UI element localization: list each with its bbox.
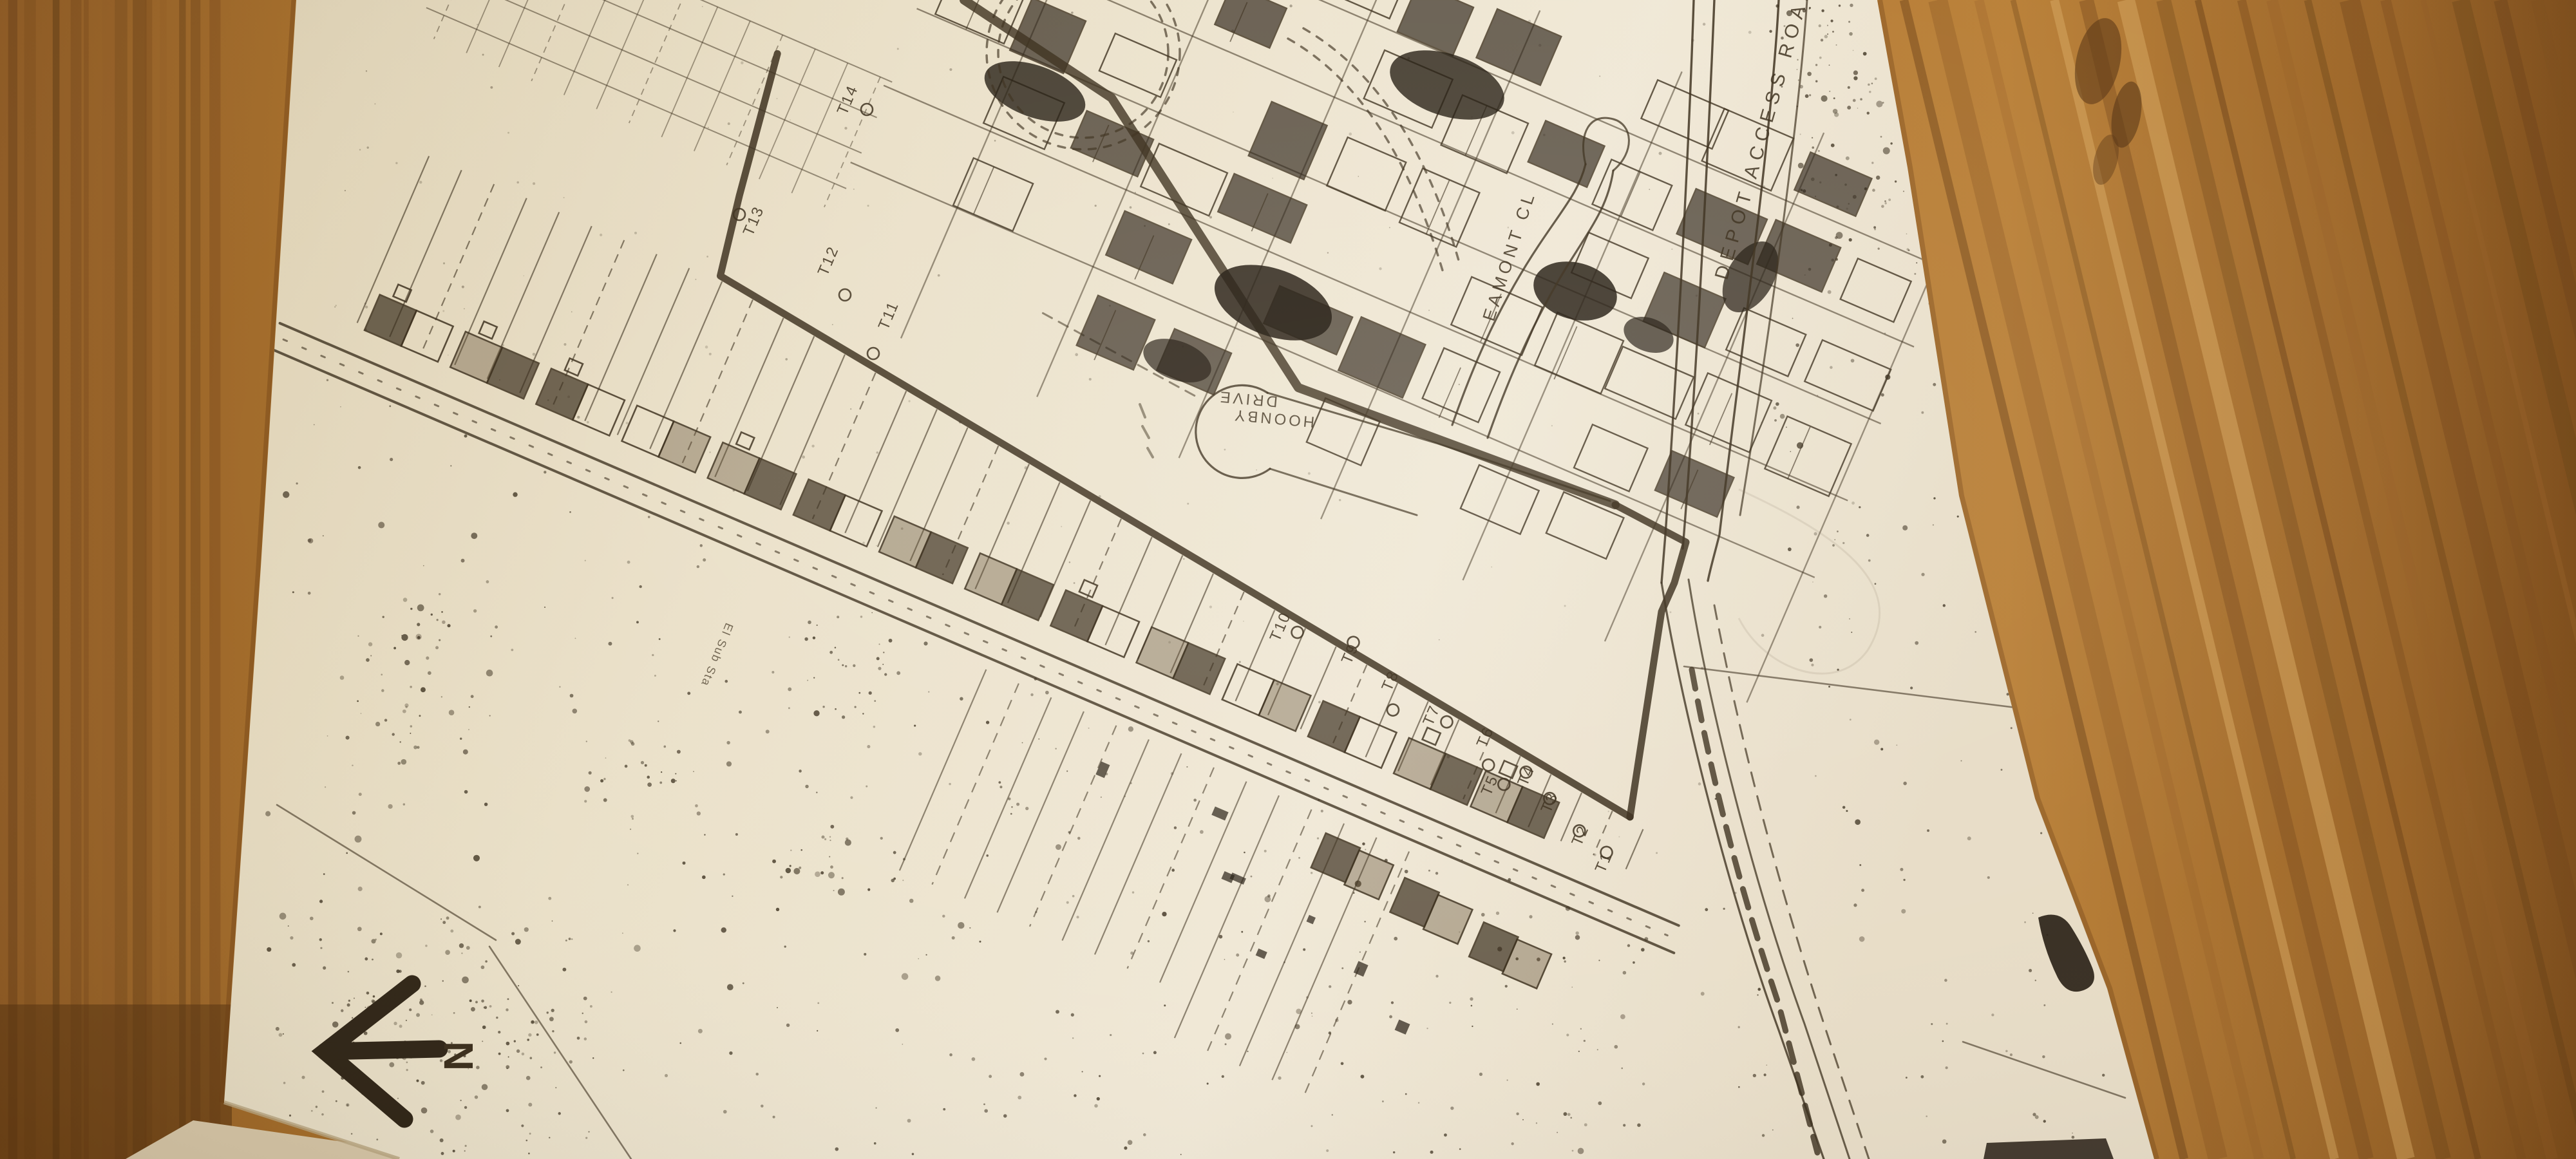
photo-lighting (0, 0, 2576, 1159)
photo-of-site-plan: T1T2T3T4T5T6T7T8T9T10 (0, 0, 2576, 1159)
